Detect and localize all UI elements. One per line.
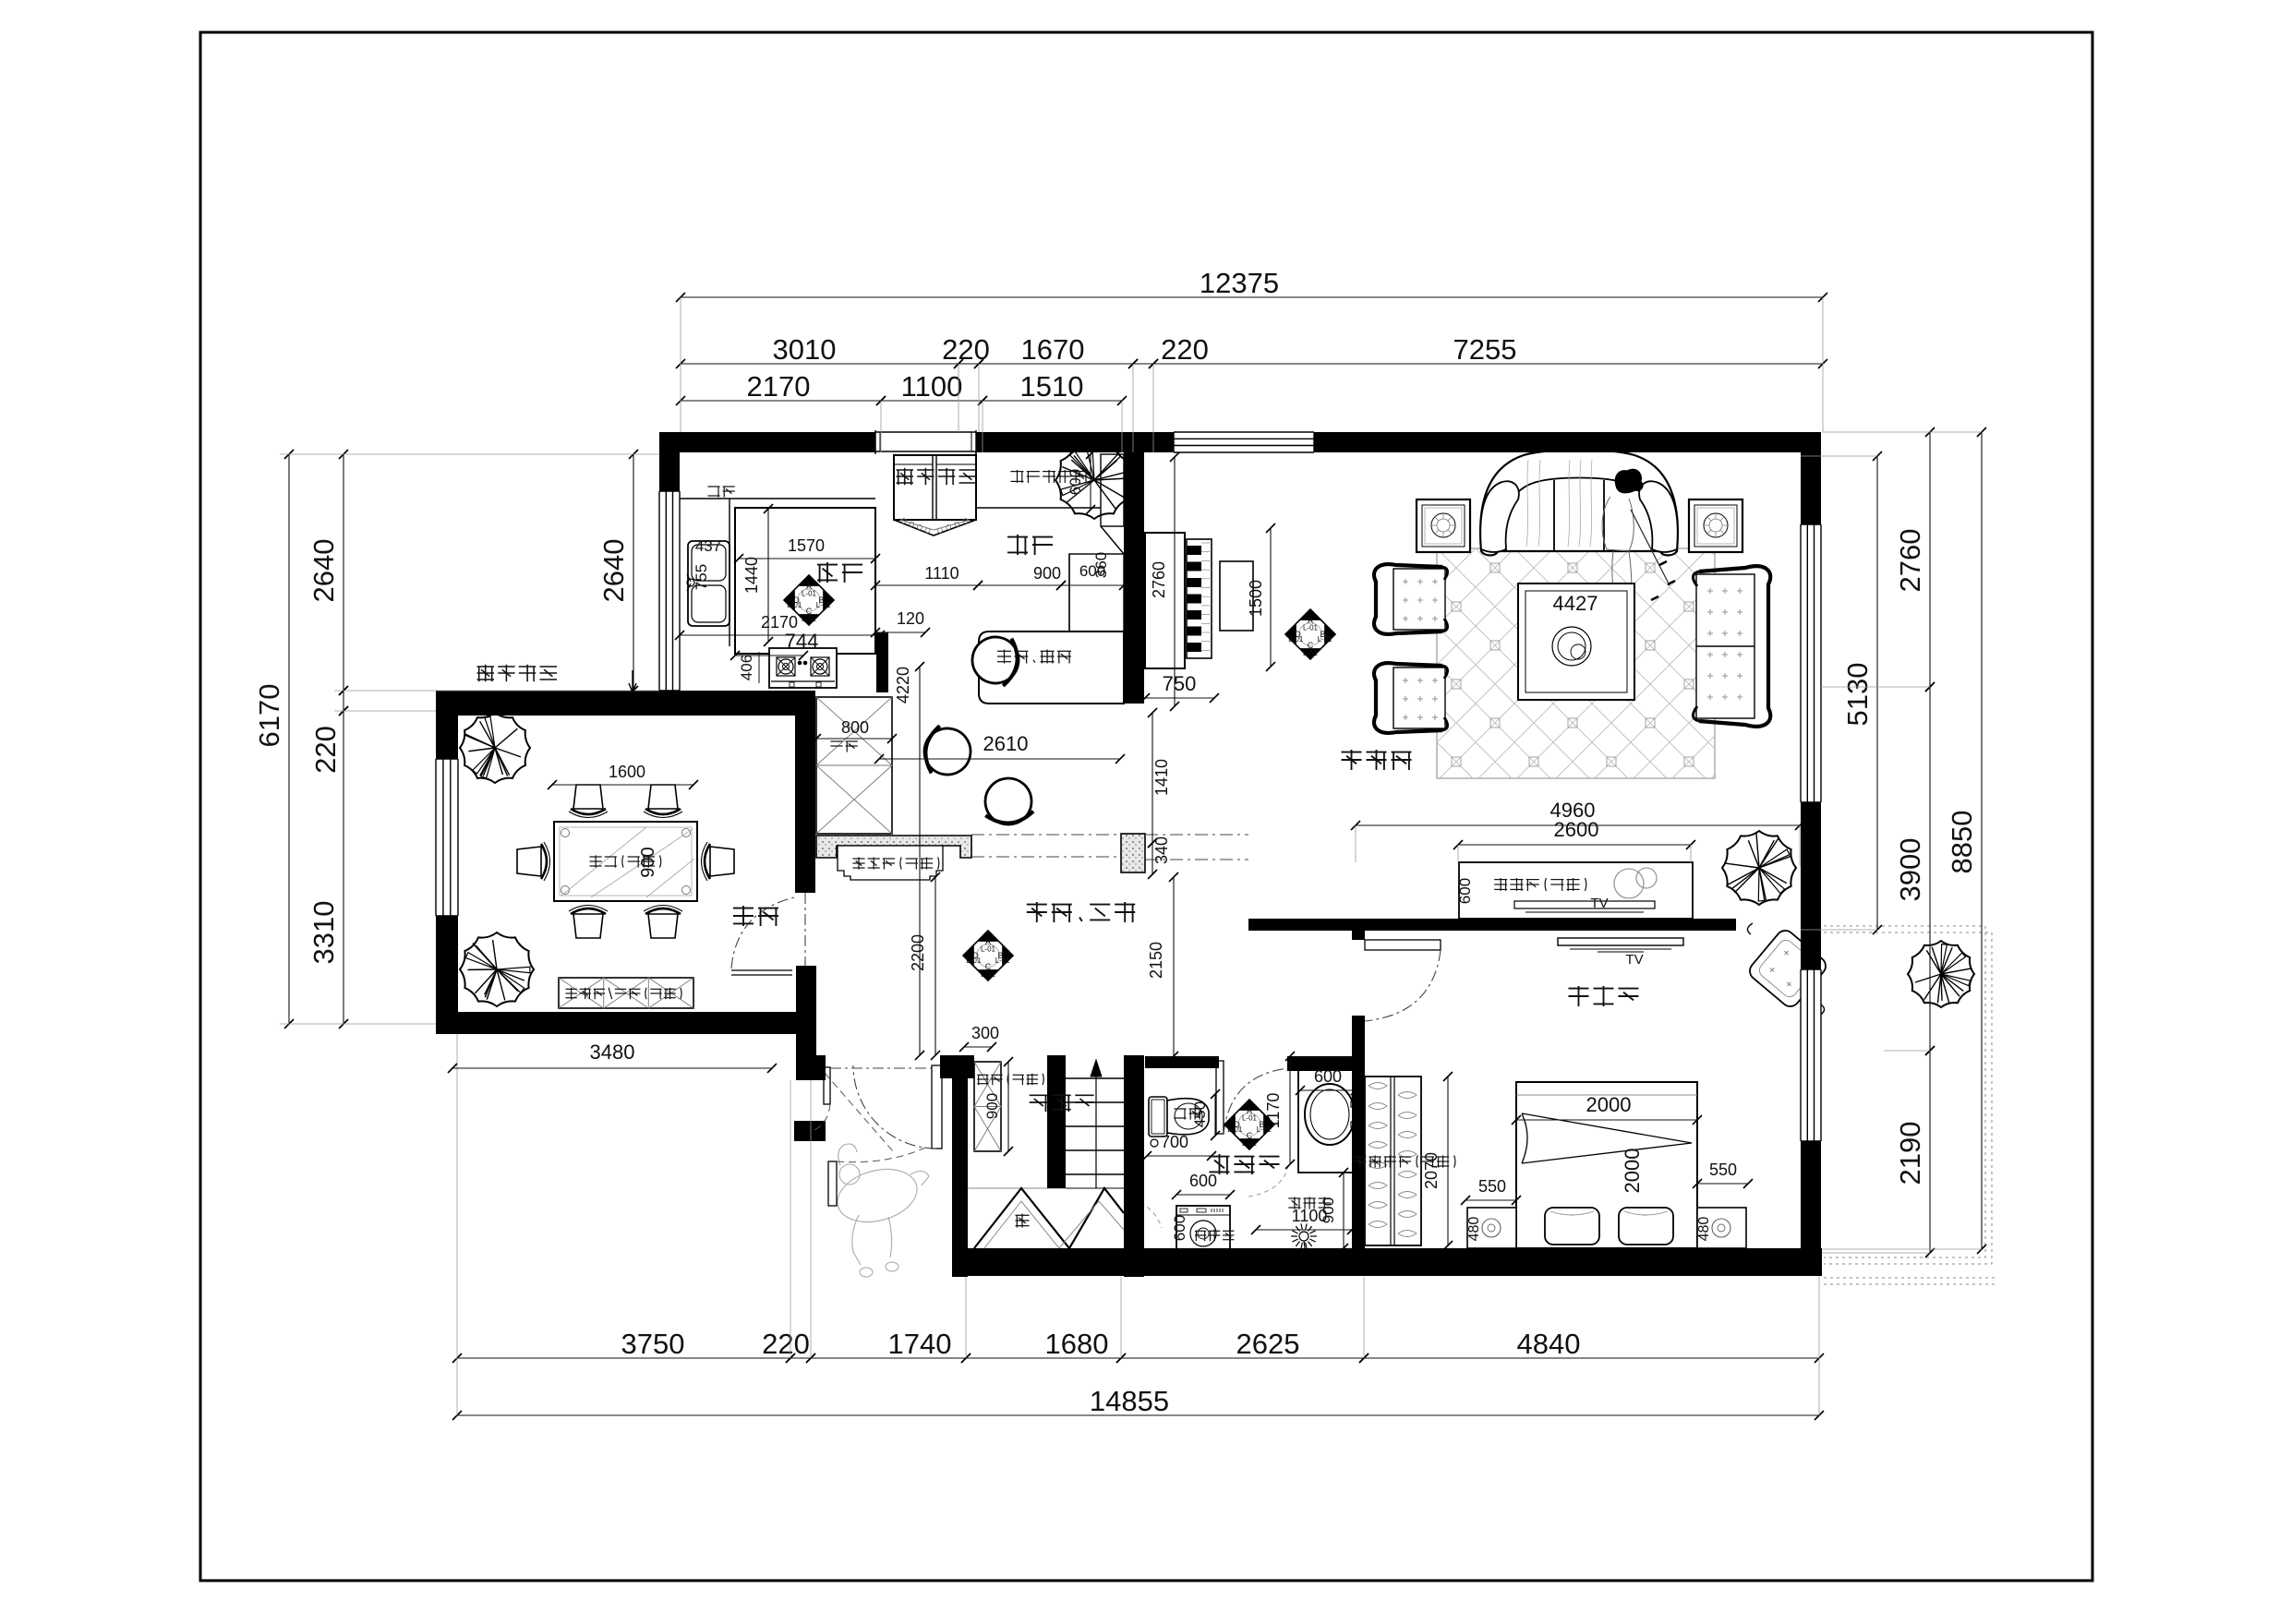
svg-text:1600: 1600 — [609, 763, 645, 781]
svg-text:600: 600 — [1314, 1067, 1342, 1086]
svg-text:550: 550 — [1478, 1177, 1506, 1196]
svg-text:L-01: L-01 — [802, 615, 817, 623]
svg-text:1570: 1570 — [788, 536, 825, 555]
svg-text:L-01: L-01 — [1318, 635, 1333, 644]
svg-text:L-01: L-01 — [802, 589, 817, 597]
svg-text:4220: 4220 — [894, 667, 912, 704]
svg-text:2600: 2600 — [1554, 818, 1599, 841]
svg-text:600: 600 — [1067, 469, 1084, 495]
svg-text:2610: 2610 — [983, 732, 1029, 755]
svg-text:1500: 1500 — [1247, 580, 1265, 617]
svg-text:600: 600 — [1189, 1172, 1217, 1190]
svg-text:437: 437 — [695, 537, 721, 555]
svg-text:TV: TV — [1590, 896, 1608, 911]
svg-text:L-01: L-01 — [1288, 635, 1304, 644]
svg-text:L-01: L-01 — [1242, 1139, 1258, 1148]
svg-text:744: 744 — [785, 630, 819, 653]
svg-text:340: 340 — [1152, 836, 1171, 864]
svg-text:1670: 1670 — [1021, 333, 1085, 366]
svg-text:480: 480 — [1696, 1217, 1712, 1242]
svg-text:2000: 2000 — [1586, 1093, 1632, 1116]
svg-text:L-01: L-01 — [966, 956, 982, 965]
svg-text:1100: 1100 — [901, 370, 963, 403]
svg-text:12375: 12375 — [1200, 267, 1279, 299]
svg-text:1680: 1680 — [1045, 1328, 1109, 1360]
svg-text:L-01: L-01 — [995, 956, 1011, 965]
svg-text:3010: 3010 — [773, 333, 837, 366]
svg-text:3480: 3480 — [590, 1041, 635, 1064]
svg-text:2170: 2170 — [747, 370, 811, 403]
svg-text:L-01: L-01 — [981, 970, 996, 979]
svg-text:L-01: L-01 — [1303, 649, 1319, 657]
svg-text:1440: 1440 — [742, 557, 761, 594]
svg-text:2640: 2640 — [307, 539, 340, 603]
svg-text:1740: 1740 — [888, 1328, 952, 1360]
svg-text:300: 300 — [971, 1024, 999, 1042]
svg-text:1410: 1410 — [1152, 759, 1171, 796]
svg-text:700: 700 — [1161, 1133, 1188, 1151]
svg-text:L-01: L-01 — [1227, 1125, 1243, 1134]
svg-text:2760: 2760 — [1150, 561, 1168, 598]
svg-text:2200: 2200 — [909, 934, 927, 971]
svg-text:2760: 2760 — [1894, 529, 1926, 593]
svg-text:220: 220 — [762, 1328, 810, 1360]
svg-text:1110: 1110 — [924, 564, 959, 583]
svg-text:TV: TV — [1625, 952, 1643, 968]
svg-text:900: 900 — [983, 1093, 1001, 1119]
svg-text:3750: 3750 — [621, 1328, 685, 1360]
svg-text:2150: 2150 — [1147, 942, 1165, 979]
svg-text:L-01: L-01 — [816, 601, 832, 609]
svg-text:2640: 2640 — [597, 539, 630, 603]
svg-text:7255: 7255 — [1453, 333, 1517, 366]
svg-text:2625: 2625 — [1236, 1328, 1300, 1360]
svg-text:220: 220 — [309, 726, 342, 774]
svg-text:2170: 2170 — [761, 613, 798, 632]
svg-text:L-01: L-01 — [1257, 1125, 1272, 1134]
svg-text:360: 360 — [1092, 552, 1110, 578]
svg-text:600: 600 — [1171, 1215, 1188, 1241]
svg-text:900: 900 — [1033, 564, 1061, 583]
svg-text:L-01: L-01 — [787, 601, 802, 609]
svg-text:755: 755 — [693, 564, 710, 590]
svg-text:3900: 3900 — [1894, 838, 1926, 902]
svg-text:220: 220 — [1161, 333, 1209, 366]
svg-text:120: 120 — [897, 609, 924, 628]
svg-text:406: 406 — [738, 655, 755, 680]
svg-text:800: 800 — [841, 718, 869, 737]
svg-text:8850: 8850 — [1946, 811, 1978, 874]
svg-text:550: 550 — [1709, 1161, 1737, 1179]
svg-text:600: 600 — [1456, 878, 1474, 904]
svg-text:L-01: L-01 — [1303, 623, 1319, 632]
svg-text:750: 750 — [1163, 672, 1197, 695]
svg-text:480: 480 — [1466, 1217, 1482, 1242]
svg-text:L-01: L-01 — [981, 944, 996, 953]
svg-text:14855: 14855 — [1090, 1385, 1169, 1417]
svg-text:1510: 1510 — [1020, 370, 1084, 403]
svg-text:4427: 4427 — [1553, 592, 1598, 615]
svg-text:L-01: L-01 — [1242, 1113, 1258, 1122]
svg-text:3310: 3310 — [307, 901, 340, 965]
svg-text:900: 900 — [1320, 1197, 1337, 1223]
svg-text:5130: 5130 — [1841, 663, 1874, 727]
svg-text:6170: 6170 — [253, 684, 285, 748]
svg-text:2190: 2190 — [1894, 1122, 1926, 1185]
svg-text:2000: 2000 — [1621, 1149, 1644, 1194]
svg-text:4840: 4840 — [1517, 1328, 1581, 1360]
